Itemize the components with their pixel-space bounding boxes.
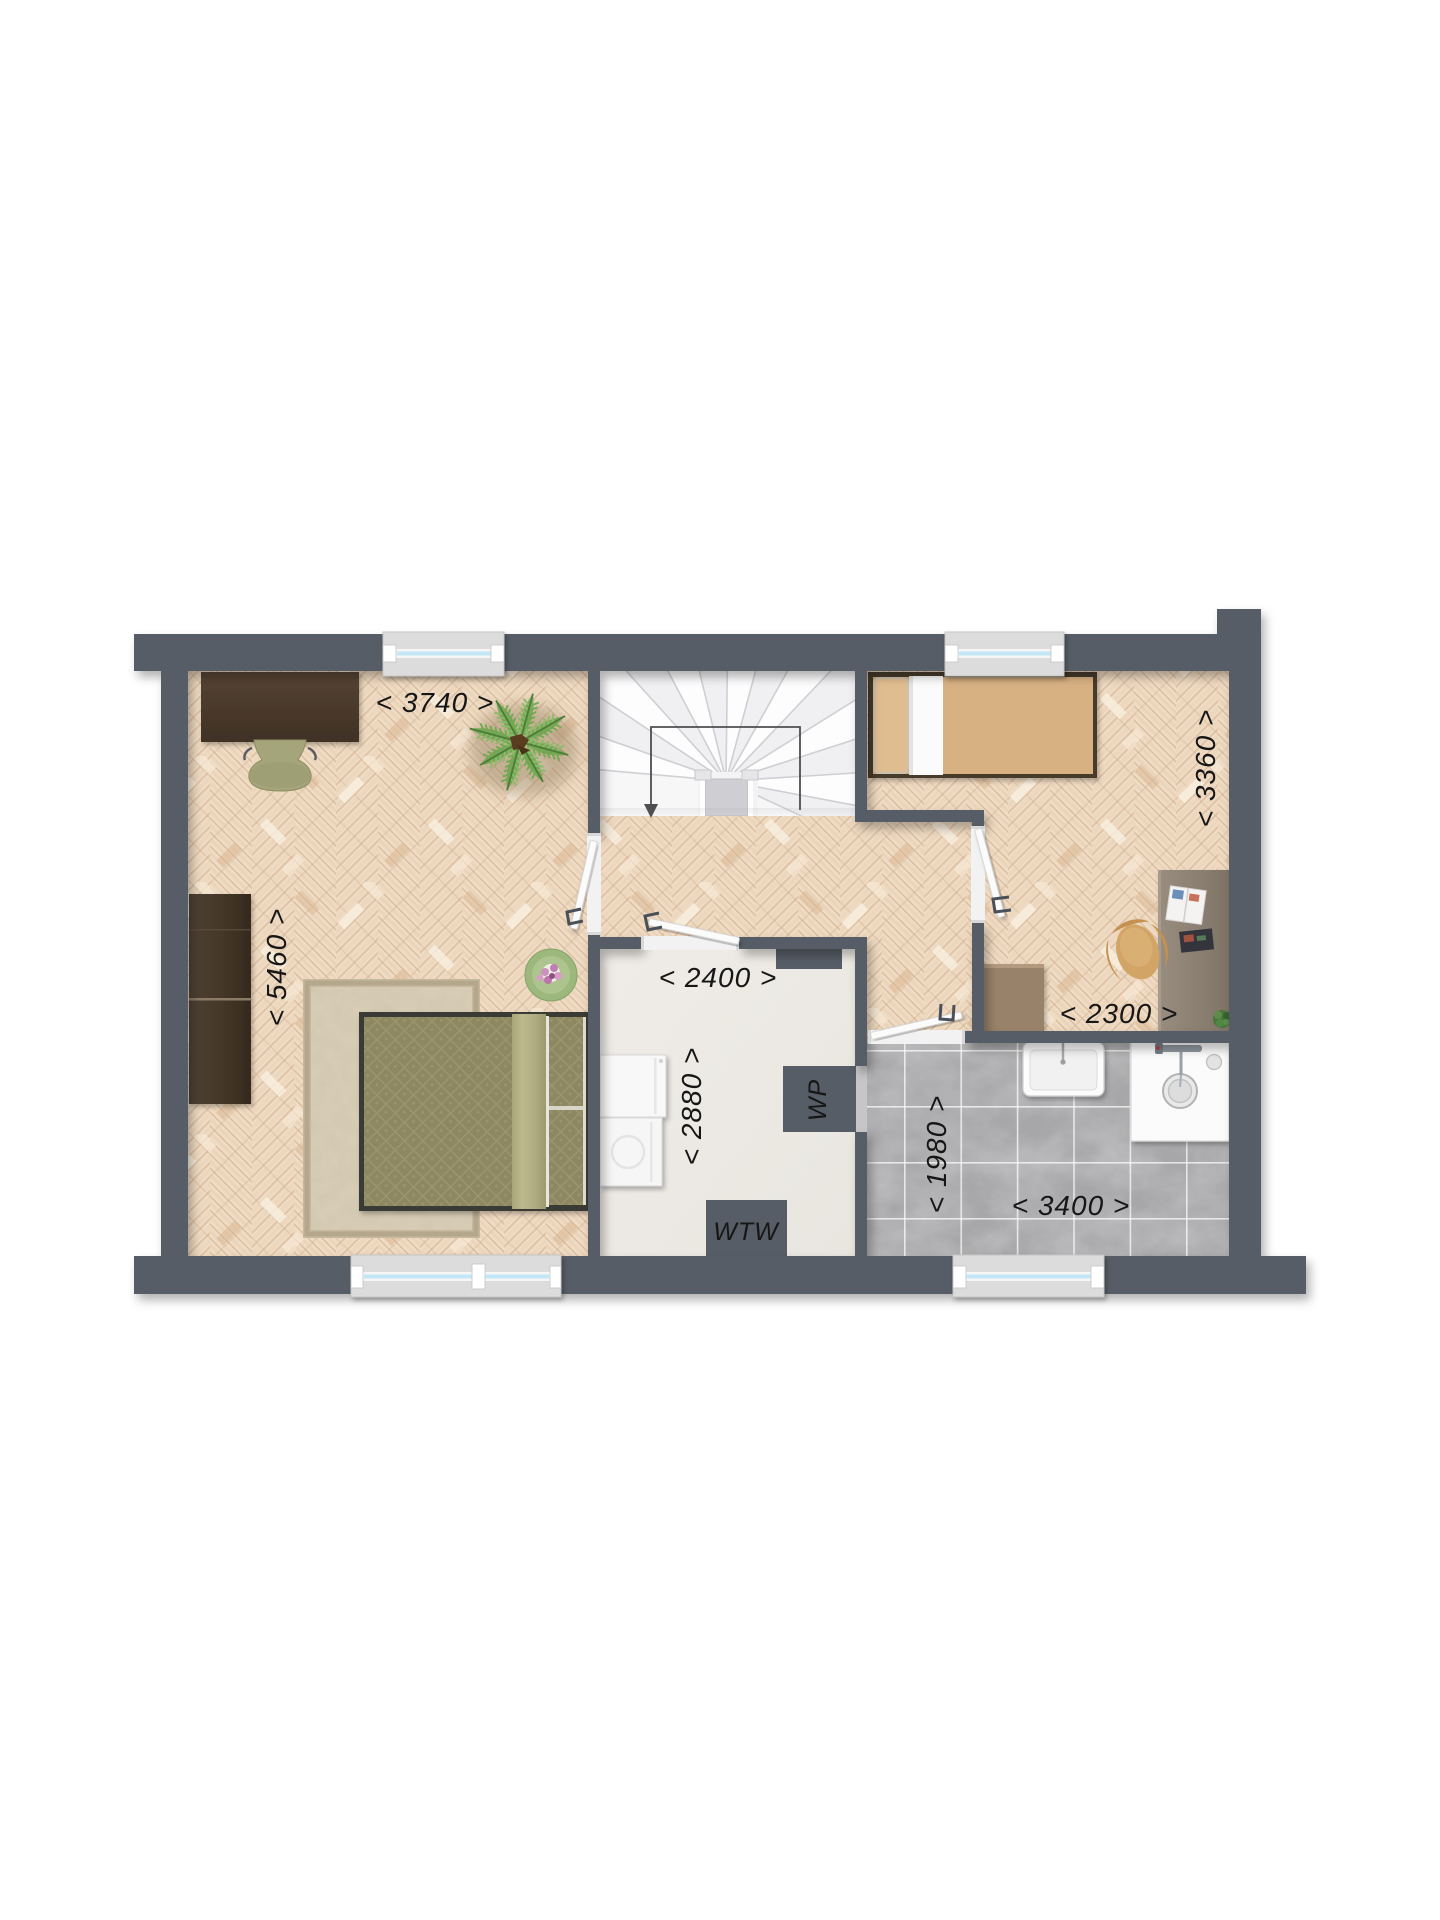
svg-text:WTW: WTW — [713, 1218, 780, 1246]
svg-text:WP: WP — [804, 1079, 832, 1121]
svg-text:< 2880 >: < 2880 > — [676, 1047, 707, 1166]
svg-text:< 2400 >: < 2400 > — [659, 962, 778, 993]
svg-text:< 1980 >: < 1980 > — [921, 1095, 952, 1214]
svg-text:< 3740 >: < 3740 > — [376, 687, 495, 718]
svg-text:< 3360 >: < 3360 > — [1190, 709, 1221, 828]
svg-text:< 5460 >: < 5460 > — [261, 908, 292, 1027]
svg-text:< 3400 >: < 3400 > — [1012, 1190, 1131, 1221]
svg-text:< 2300 >: < 2300 > — [1060, 998, 1179, 1029]
